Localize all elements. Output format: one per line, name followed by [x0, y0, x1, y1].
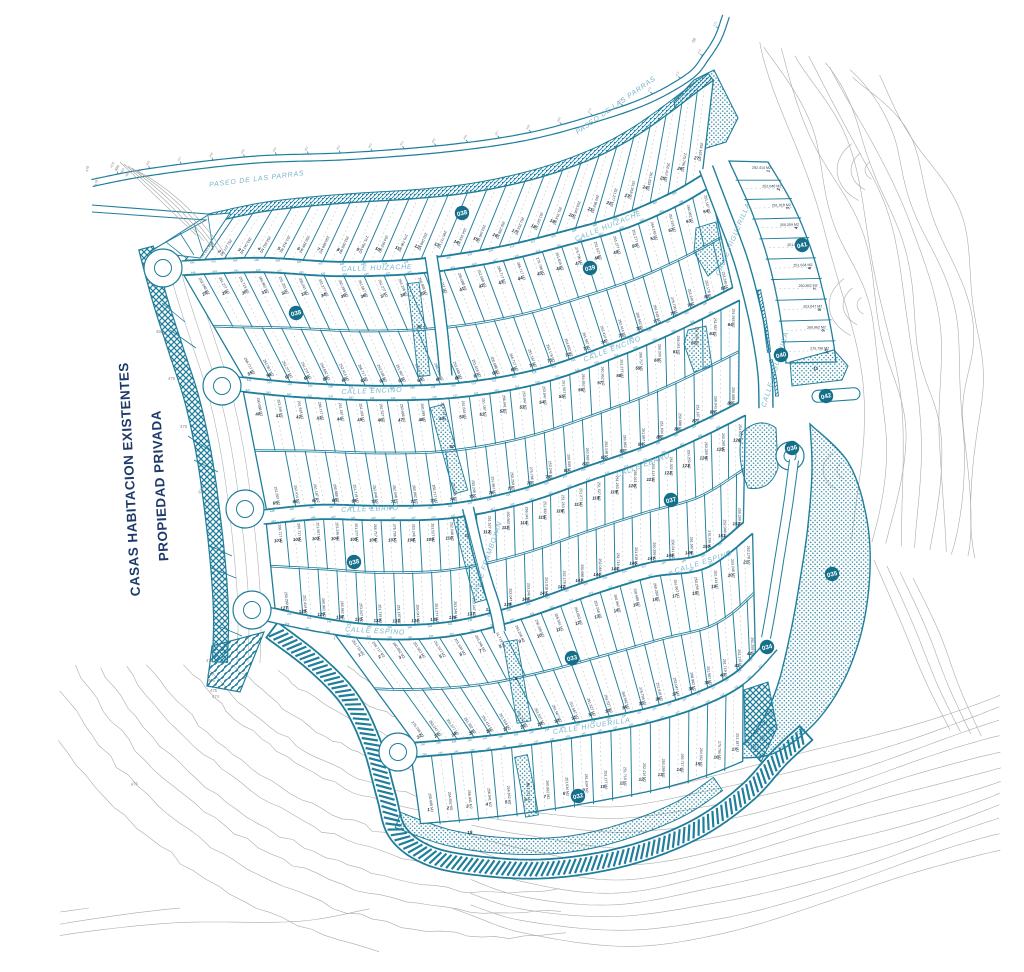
svg-text:87: 87: [692, 418, 698, 423]
svg-text:142: 142: [558, 584, 566, 589]
svg-text:11: 11: [620, 780, 625, 785]
svg-text:120: 120: [628, 483, 636, 488]
svg-text:533: 533: [391, 396, 396, 400]
svg-text:337: 337: [408, 635, 413, 639]
svg-text:83: 83: [619, 448, 625, 453]
svg-text:644: 644: [190, 260, 195, 264]
svg-text:126: 126: [733, 438, 741, 443]
svg-text:124: 124: [699, 455, 707, 460]
svg-text:82: 82: [601, 455, 607, 460]
svg-text:55: 55: [559, 394, 565, 399]
svg-text:119: 119: [610, 489, 618, 494]
svg-text:106: 106: [369, 537, 377, 542]
svg-text:253.047 M2: 253.047 M2: [803, 304, 822, 308]
svg-text:8: 8: [515, 676, 518, 681]
svg-text:139: 139: [504, 602, 512, 607]
svg-text:115: 115: [538, 515, 546, 520]
svg-text:131: 131: [355, 616, 363, 621]
svg-text:17: 17: [732, 747, 738, 752]
svg-text:538: 538: [328, 385, 333, 389]
svg-text:149: 149: [685, 550, 693, 555]
svg-text:13: 13: [658, 772, 663, 777]
svg-text:460: 460: [156, 329, 164, 334]
svg-text:148: 148: [666, 553, 674, 558]
svg-text:137: 137: [467, 611, 475, 616]
svg-text:40: 40: [719, 672, 726, 678]
svg-text:478: 478: [180, 424, 188, 429]
svg-text:89: 89: [727, 401, 732, 406]
svg-text:109: 109: [426, 537, 434, 542]
svg-text:530: 530: [410, 385, 415, 389]
svg-text:21: 21: [742, 559, 749, 564]
svg-text:540: 540: [308, 384, 313, 388]
svg-text:474: 474: [212, 694, 220, 699]
svg-text:151: 151: [718, 533, 726, 538]
svg-text:104: 104: [331, 536, 339, 541]
svg-text:640: 640: [233, 258, 238, 262]
svg-text:341: 341: [367, 634, 372, 638]
svg-text:643: 643: [212, 269, 217, 273]
svg-text:20: 20: [727, 572, 734, 577]
svg-text:63: 63: [709, 331, 714, 336]
svg-text:641: 641: [234, 268, 239, 272]
svg-text:59: 59: [635, 365, 641, 370]
svg-text:146: 146: [629, 561, 637, 566]
svg-text:122: 122: [664, 470, 672, 475]
svg-text:125: 125: [716, 447, 724, 452]
svg-text:41: 41: [733, 663, 740, 668]
svg-text:81: 81: [582, 461, 588, 466]
svg-text:260.962 M2: 260.962 M2: [807, 325, 826, 329]
svg-text:475: 475: [210, 688, 218, 693]
svg-text:542: 542: [287, 382, 292, 386]
svg-text:60: 60: [449, 444, 455, 449]
svg-text:334: 334: [427, 624, 432, 628]
svg-text:645: 645: [191, 270, 196, 274]
svg-text:84: 84: [638, 442, 644, 447]
svg-text:344: 344: [327, 619, 332, 623]
svg-text:544: 544: [267, 380, 272, 384]
svg-text:251.634 M2: 251.634 M2: [584, 774, 589, 793]
svg-text:80: 80: [564, 468, 570, 473]
svg-text:250.259 M2: 250.259 M2: [780, 223, 799, 227]
svg-text:116: 116: [556, 508, 564, 513]
svg-text:121: 121: [646, 477, 654, 482]
svg-text:260.862 M2: 260.862 M2: [799, 284, 818, 288]
svg-text:477: 477: [207, 672, 215, 677]
svg-text:128: 128: [299, 608, 307, 614]
svg-text:101: 101: [274, 538, 282, 544]
svg-text:642: 642: [211, 259, 216, 263]
svg-text:64: 64: [728, 322, 733, 327]
svg-text:150: 150: [703, 544, 711, 549]
svg-text:252.414 M2: 252.414 M2: [752, 166, 771, 170]
svg-text:479: 479: [168, 376, 176, 381]
svg-text:335: 335: [429, 634, 434, 638]
svg-text:12: 12: [639, 777, 644, 782]
svg-text:251.918 M2: 251.918 M2: [772, 203, 791, 207]
svg-text:14: 14: [676, 767, 681, 772]
svg-text:117: 117: [574, 502, 582, 507]
svg-text:86: 86: [674, 426, 680, 431]
svg-text:539: 539: [328, 395, 333, 399]
svg-text:61: 61: [673, 349, 679, 354]
svg-text:147: 147: [647, 556, 655, 561]
svg-text:15: 15: [695, 761, 701, 766]
svg-text:133: 133: [392, 618, 400, 623]
svg-text:107: 107: [388, 537, 396, 542]
svg-text:252.048 M2: 252.048 M2: [762, 184, 781, 188]
svg-text:108: 108: [407, 537, 415, 542]
svg-text:345: 345: [325, 629, 330, 633]
svg-text:132: 132: [373, 618, 381, 623]
svg-text:85: 85: [656, 434, 662, 439]
svg-text:336: 336: [407, 625, 412, 629]
svg-text:112: 112: [483, 529, 491, 534]
svg-text:541: 541: [308, 394, 313, 398]
svg-text:129: 129: [317, 611, 325, 617]
svg-text:136: 136: [449, 615, 457, 620]
svg-text:114: 114: [520, 520, 528, 525]
svg-text:547: 547: [245, 388, 250, 392]
svg-text:105: 105: [350, 537, 358, 542]
svg-text:478: 478: [206, 658, 214, 663]
svg-text:543: 543: [287, 392, 292, 396]
svg-text:123: 123: [682, 463, 690, 468]
svg-text:545: 545: [266, 390, 271, 394]
svg-text:531: 531: [411, 395, 416, 399]
svg-text:42: 42: [746, 651, 753, 656]
svg-text:110: 110: [445, 535, 453, 540]
svg-text:57: 57: [597, 380, 603, 385]
svg-text:546: 546: [247, 378, 252, 382]
svg-text:145: 145: [611, 566, 619, 571]
svg-text:251.634 M2: 251.634 M2: [793, 263, 812, 267]
svg-text:2: 2: [776, 188, 781, 192]
svg-text:141: 141: [540, 591, 548, 596]
svg-text:134: 134: [411, 618, 419, 623]
svg-text:118: 118: [592, 495, 600, 500]
svg-text:135: 135: [430, 617, 438, 622]
svg-text:144: 144: [593, 572, 601, 577]
svg-text:102: 102: [293, 537, 301, 543]
svg-text:16: 16: [714, 754, 720, 759]
svg-text:7: 7: [527, 782, 530, 787]
svg-text:103: 103: [312, 536, 320, 542]
svg-text:140: 140: [522, 596, 530, 601]
svg-text:537: 537: [349, 395, 354, 399]
svg-text:56: 56: [578, 387, 584, 392]
svg-text:58: 58: [616, 373, 622, 378]
svg-text:88: 88: [710, 409, 715, 414]
svg-text:39: 39: [416, 324, 422, 329]
svg-text:60: 60: [654, 358, 660, 363]
svg-text:535: 535: [370, 396, 375, 400]
svg-text:476: 476: [208, 678, 216, 683]
svg-text:143: 143: [575, 578, 583, 583]
svg-text:10: 10: [600, 784, 606, 789]
svg-text:130: 130: [336, 614, 344, 619]
